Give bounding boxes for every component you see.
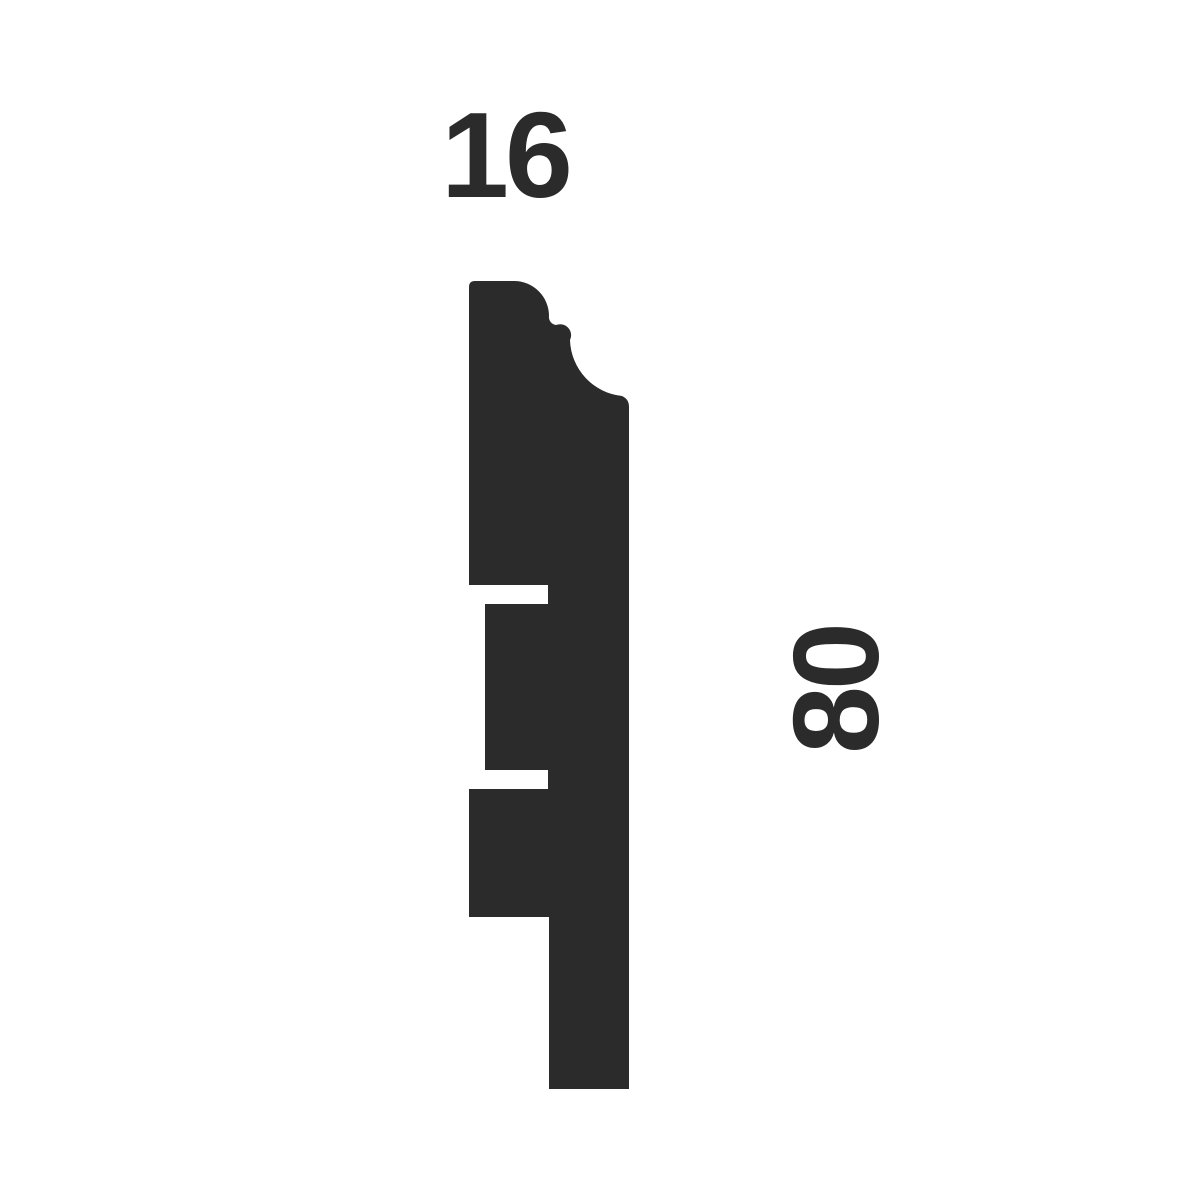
- height-dimension-label: 80: [775, 626, 897, 754]
- width-dimension-label: 16: [441, 94, 569, 216]
- moulding-profile-shape: [469, 281, 629, 1089]
- profile-silhouette: [0, 0, 1200, 1200]
- diagram-canvas: 16 80: [0, 0, 1200, 1200]
